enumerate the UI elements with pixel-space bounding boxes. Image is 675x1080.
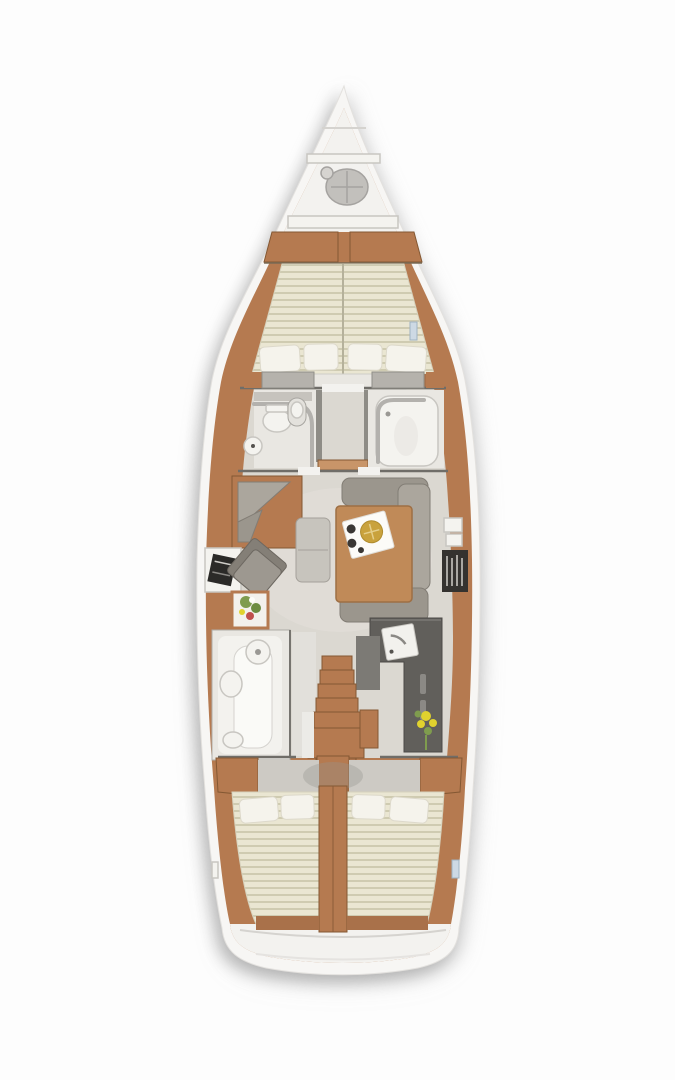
door-gap-stbd [358,467,380,475]
fwd-cabin-door-gap [322,384,364,392]
sideboard-box [444,518,462,532]
cabinet-gray-port [262,372,314,388]
flower-leaf [415,711,422,718]
aft-bed-foot-port [256,916,319,930]
aft-header-stbd [420,758,462,796]
pillow [352,794,386,819]
door-gap-port [298,467,320,475]
stair-step [322,656,352,670]
pillow [348,344,382,371]
aft-sink-drain [255,649,261,655]
flower-yellow [421,711,431,721]
pillow [304,344,338,371]
vberth-headboard-port [264,232,338,262]
shower-seat [394,416,418,456]
stair-landing [308,728,364,758]
stair-step [314,712,360,728]
stair-side-cabinet [360,710,378,748]
floorplan-canvas [0,0,675,1080]
bow-partition-2 [307,154,380,163]
aft-bed-foot-stbd [347,916,428,930]
anchor-ring [321,167,333,179]
collision-bulkhead [288,216,398,228]
shower-drain [386,412,391,417]
sink-basin [381,623,418,660]
sideboard-box-2 [446,534,462,546]
stair-step [318,684,356,698]
toilet-aft [220,671,242,697]
pillow [281,794,315,819]
corridor-wall-port [316,390,322,462]
engine-box [356,636,380,690]
flower-yellow [239,609,245,615]
stair-side-wall [302,712,314,758]
aft-header-port [216,758,258,796]
vanity-basin-port [291,402,303,418]
yacht-floorplan [0,0,675,1080]
flower-leaf [424,727,432,735]
pillow [259,345,301,374]
cabinet-wood-port [244,372,262,388]
galley-handle [420,674,426,694]
cabinet-gray-stbd [372,372,424,388]
flower-red [246,612,254,620]
pillow [389,796,429,823]
vberth-headboard-stbd [350,232,422,262]
pillow [385,345,427,374]
port-head-shelf [254,392,312,401]
pillow [239,796,279,823]
flower-white [249,597,255,603]
stair-step [320,670,354,684]
toilet-tank-fwd [266,405,288,412]
aft-head-basin [223,732,243,748]
galley-sink [381,623,418,660]
flower-yellow [429,719,437,727]
cabinet-wood-stbd [426,372,444,388]
toilet-fwd [263,410,291,432]
hull-window-aft [452,860,459,878]
flower-yellow [417,720,425,728]
flower-leaf [251,603,261,613]
hull-latch-port [212,862,218,878]
stair-step [316,698,358,712]
flower-side-table [232,592,268,628]
hull-window-fwd [410,322,417,340]
bookshelf [442,550,468,592]
sink-drain [251,444,255,448]
